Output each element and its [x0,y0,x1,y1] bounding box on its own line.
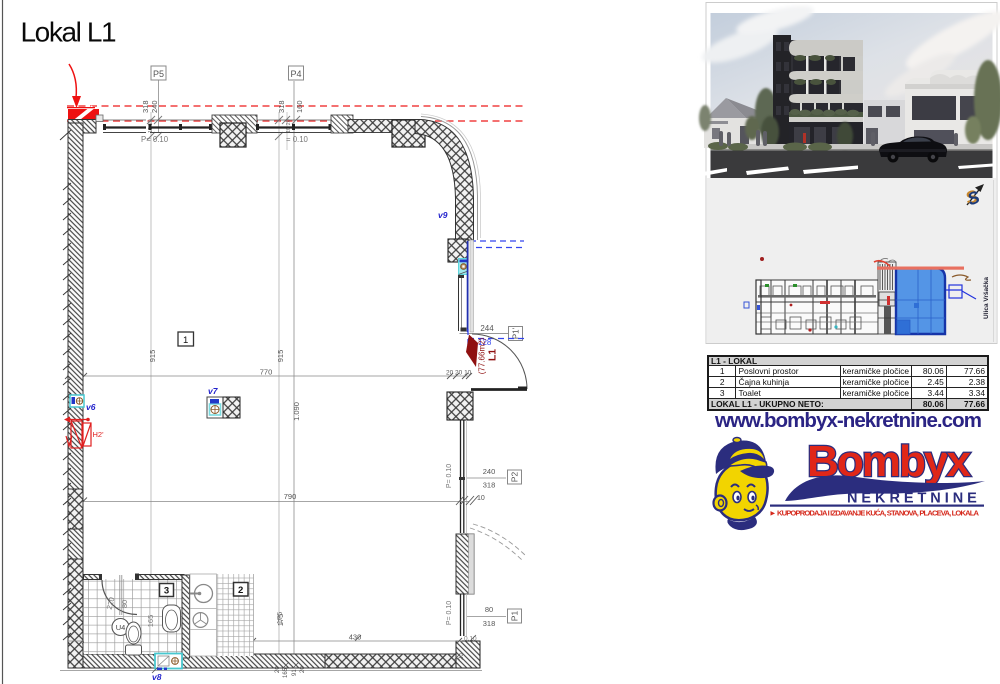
svg-text:10: 10 [477,495,485,502]
svg-text:318: 318 [277,100,286,113]
svg-text:P4: P4 [290,69,301,79]
svg-text:770: 770 [260,368,273,377]
svg-text:915: 915 [148,350,157,363]
svg-text:v9: v9 [438,210,448,220]
svg-text:Lokal L1: Lokal L1 [21,17,116,48]
svg-text:v7: v7 [208,386,219,396]
svg-text:= 0.10: = 0.10 [286,135,309,144]
svg-text:H2': H2' [93,430,105,439]
svg-text:3: 3 [164,586,169,597]
svg-text:0.10: 0.10 [464,636,477,643]
svg-text:10 20: 10 20 [286,119,292,133]
svg-text:318: 318 [141,100,150,113]
svg-text:20: 20 [300,666,306,673]
svg-text:1: 1 [183,335,188,346]
svg-text:91: 91 [292,669,298,676]
svg-text:240: 240 [150,100,159,113]
svg-text:Ulica Vršačka: Ulica Vršačka [983,277,990,319]
svg-text:2: 2 [238,585,243,596]
svg-text:790: 790 [284,492,297,501]
svg-text:318: 318 [483,481,496,490]
svg-text:P2: P2 [510,472,520,483]
svg-text:318: 318 [483,619,496,628]
svg-text:P5: P5 [153,69,164,79]
svg-text:915: 915 [276,350,285,363]
svg-text:U4: U4 [116,623,126,632]
svg-text:80: 80 [120,600,129,608]
svg-text:165: 165 [146,615,155,628]
svg-text:165: 165 [283,667,289,678]
svg-text:80: 80 [485,605,493,614]
svg-text:20: 20 [275,666,281,673]
svg-text:20: 20 [459,653,465,660]
svg-text:P1: P1 [510,611,520,622]
svg-text:L1: L1 [487,349,499,361]
svg-text:► KUPOPRODAJA I IZDAVANJE KUĆA: ► KUPOPRODAJA I IZDAVANJE KUĆA, STANOVA,… [769,509,980,518]
svg-text:P= 0.10: P= 0.10 [446,601,453,625]
svg-text:P= 0.10: P= 0.10 [446,464,453,488]
svg-text:175: 175 [275,612,284,625]
svg-text:(77.66m2): (77.66m2) [478,337,487,374]
svg-text:244: 244 [480,324,494,333]
svg-text:1.090: 1.090 [292,402,301,421]
svg-text:160: 160 [295,100,304,113]
svg-text:v6: v6 [86,402,96,412]
svg-text:P1': P1' [512,327,521,339]
svg-text:v8: v8 [152,672,162,682]
svg-text:P= 0.10: P= 0.10 [141,135,169,144]
svg-text:240: 240 [483,467,496,476]
svg-text:NEKRETNINE: NEKRETNINE [847,491,979,507]
